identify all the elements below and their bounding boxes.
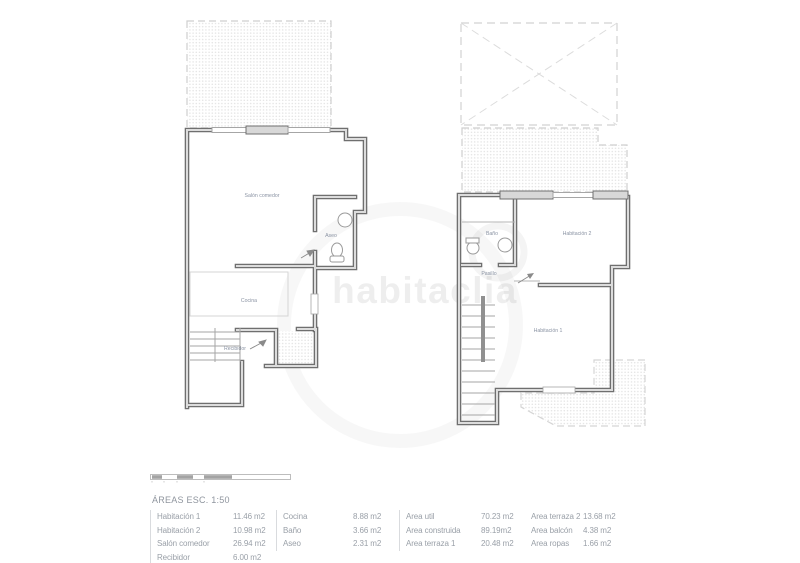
room-label-salon: Salón comedor bbox=[245, 193, 280, 199]
legend-group-rooms-1: Habitación 1 11.46 m2 Habitación 2 10.98… bbox=[150, 510, 276, 563]
left-plan-windows bbox=[212, 126, 330, 314]
legend-row: Habitación 2 10.98 m2 bbox=[157, 524, 276, 538]
legend-row: Aseo 2.31 m2 bbox=[283, 537, 399, 551]
area-label: Area balcón bbox=[531, 524, 583, 538]
left-floor-plan: Salón comedor Aseo Cocina Recibidor bbox=[187, 21, 365, 407]
room-label-habitacion2: Habitación 2 bbox=[563, 231, 592, 237]
right-lower-terrace-area bbox=[521, 360, 645, 426]
area-label: Area terraza 1 bbox=[406, 537, 481, 551]
right-plan-door-arrows bbox=[514, 273, 540, 283]
legend-row: Area construida 89.19m2 bbox=[406, 524, 525, 538]
area-value: 26.94 m2 bbox=[233, 537, 266, 551]
right-roof-void bbox=[461, 23, 617, 125]
room-label-recibidor: Recibidor bbox=[224, 346, 246, 352]
area-label: Aseo bbox=[283, 537, 353, 551]
legend-row: Cocina 8.88 m2 bbox=[283, 510, 399, 524]
legend-group-totals-2: Area terraza 2 13.68 m2 Area balcón 4.38… bbox=[525, 510, 655, 551]
floorplan-page: habitaclia bbox=[0, 0, 800, 563]
room-label-aseo: Aseo bbox=[325, 233, 337, 239]
area-value: 13.68 m2 bbox=[583, 510, 616, 524]
legend-row: Area balcón 4.38 m2 bbox=[531, 524, 655, 538]
right-floor-plan: Baño Habitación 2 Pasillo Habitación 1 bbox=[459, 23, 645, 426]
area-value: 10.98 m2 bbox=[233, 524, 266, 538]
area-value: 2.31 m2 bbox=[353, 537, 381, 551]
left-terrace-area bbox=[187, 21, 331, 128]
toilet-icon bbox=[466, 238, 479, 254]
sink-icon bbox=[338, 213, 352, 227]
area-label: Habitación 2 bbox=[157, 524, 233, 538]
area-value: 89.19m2 bbox=[481, 524, 511, 538]
area-label: Cocina bbox=[283, 510, 353, 524]
legend-row: Area ropas 1.66 m2 bbox=[531, 537, 655, 551]
area-value: 20.48 m2 bbox=[481, 537, 514, 551]
area-value: 8.88 m2 bbox=[353, 510, 381, 524]
habitaclia-watermark: habitaclia bbox=[284, 209, 524, 441]
left-plan-walls bbox=[187, 130, 365, 407]
area-value: 1.66 m2 bbox=[583, 537, 611, 551]
legend-row: Salón comedor 26.94 m2 bbox=[157, 537, 276, 551]
legend-group-rooms-2: Cocina 8.88 m2 Baño 3.66 m2 Aseo 2.31 m2 bbox=[276, 510, 399, 551]
room-label-pasillo: Pasillo bbox=[481, 271, 496, 277]
right-upper-terrace-area bbox=[462, 128, 627, 192]
area-value: 70.23 m2 bbox=[481, 510, 514, 524]
legend-row: Recibidor 6.00 m2 bbox=[157, 551, 276, 563]
room-label-habitacion1: Habitación 1 bbox=[534, 328, 563, 334]
stair-rail bbox=[481, 296, 485, 362]
area-label: Area terraza 2 bbox=[531, 510, 583, 524]
area-label: Habitación 1 bbox=[157, 510, 233, 524]
area-value: 3.66 m2 bbox=[353, 524, 381, 538]
entry-arrowhead-icon bbox=[259, 340, 266, 346]
legend-row: Baño 3.66 m2 bbox=[283, 524, 399, 538]
legend-title: ÁREAS ESC. 1:50 bbox=[152, 495, 690, 505]
sink-icon bbox=[498, 238, 512, 252]
hab1-arrowhead-icon bbox=[527, 273, 534, 279]
area-label: Area construida bbox=[406, 524, 481, 538]
area-label: Area util bbox=[406, 510, 481, 524]
legend-row: Habitación 1 11.46 m2 bbox=[157, 510, 276, 524]
legend-group-totals-1: Area util 70.23 m2 Area construida 89.19… bbox=[399, 510, 525, 551]
toilet-icon bbox=[330, 243, 344, 262]
kitchen-counter bbox=[190, 272, 288, 316]
scale-bar bbox=[150, 472, 300, 483]
room-label-cocina: Cocina bbox=[241, 298, 257, 304]
areas-legend: ÁREAS ESC. 1:50 Habitación 1 11.46 m2 Ha… bbox=[150, 470, 690, 563]
area-label: Salón comedor bbox=[157, 537, 233, 551]
floor-plans-canvas: habitaclia bbox=[0, 0, 800, 470]
area-value: 6.00 m2 bbox=[233, 551, 261, 563]
area-label: Baño bbox=[283, 524, 353, 538]
legend-row: Area util 70.23 m2 bbox=[406, 510, 525, 524]
area-value: 4.38 m2 bbox=[583, 524, 611, 538]
left-patio-hatch bbox=[277, 331, 315, 365]
room-label-bano: Baño bbox=[486, 231, 498, 237]
area-label: Area ropas bbox=[531, 537, 583, 551]
left-plan-stairs bbox=[190, 328, 240, 362]
legend-row: Area terraza 1 20.48 m2 bbox=[406, 537, 525, 551]
legend-row: Area terraza 2 13.68 m2 bbox=[531, 510, 655, 524]
legend-groups: Habitación 1 11.46 m2 Habitación 2 10.98… bbox=[150, 510, 690, 563]
area-label: Recibidor bbox=[157, 551, 233, 563]
area-value: 11.46 m2 bbox=[233, 510, 265, 524]
